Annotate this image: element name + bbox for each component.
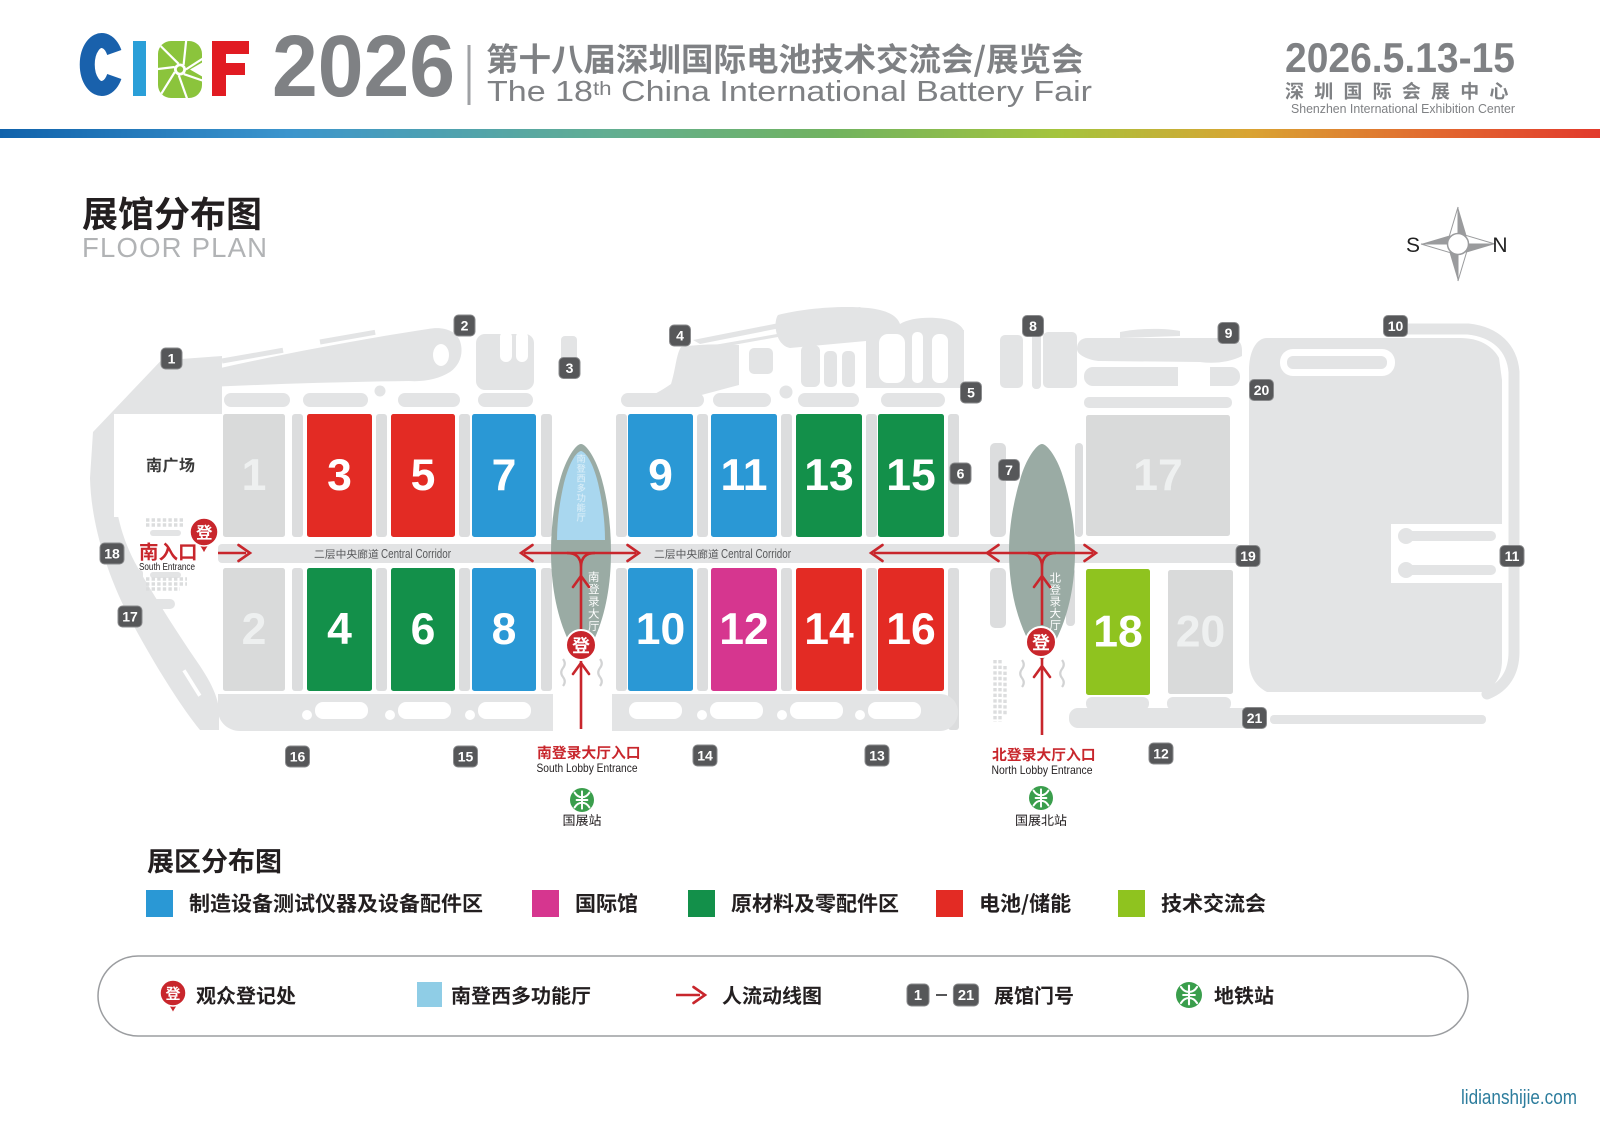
svg-text:3: 3 bbox=[566, 360, 574, 376]
svg-text:13: 13 bbox=[869, 747, 885, 763]
svg-text:10: 10 bbox=[1388, 318, 1404, 334]
svg-text:16: 16 bbox=[290, 748, 306, 764]
svg-text:2026: 2026 bbox=[272, 18, 455, 115]
svg-text:16: 16 bbox=[886, 605, 936, 654]
svg-text:1: 1 bbox=[242, 451, 267, 500]
svg-text:7: 7 bbox=[1005, 462, 1013, 478]
svg-text:15: 15 bbox=[886, 451, 936, 500]
svg-text:North Lobby Entrance: North Lobby Entrance bbox=[992, 763, 1093, 777]
svg-text:20: 20 bbox=[1176, 608, 1226, 657]
svg-text:12: 12 bbox=[719, 605, 769, 654]
svg-text:7: 7 bbox=[492, 451, 517, 500]
svg-text:9: 9 bbox=[1225, 325, 1233, 341]
svg-text:9: 9 bbox=[648, 451, 673, 500]
svg-text:20: 20 bbox=[1254, 382, 1270, 398]
svg-text:17: 17 bbox=[1133, 451, 1183, 500]
svg-text:8: 8 bbox=[1029, 318, 1037, 334]
svg-text:South Lobby Entrance: South Lobby Entrance bbox=[537, 761, 638, 775]
svg-text:15: 15 bbox=[458, 748, 474, 764]
svg-text:South Entrance: South Entrance bbox=[139, 561, 195, 573]
svg-text:Central Corridor: Central Corridor bbox=[721, 547, 791, 561]
svg-text:5: 5 bbox=[967, 384, 975, 400]
svg-text:21: 21 bbox=[958, 988, 974, 1004]
svg-text:14: 14 bbox=[804, 605, 854, 654]
svg-text:Central Corridor: Central Corridor bbox=[381, 547, 451, 561]
svg-text:11: 11 bbox=[1505, 548, 1520, 564]
svg-text:lidianshijie.com: lidianshijie.com bbox=[1461, 1087, 1577, 1109]
svg-text:8: 8 bbox=[492, 605, 517, 654]
svg-text:19: 19 bbox=[1240, 548, 1256, 564]
svg-text:4: 4 bbox=[676, 327, 684, 343]
svg-text:1: 1 bbox=[168, 350, 176, 366]
svg-text:17: 17 bbox=[122, 608, 138, 624]
svg-text:14: 14 bbox=[697, 747, 713, 763]
svg-text:11: 11 bbox=[720, 451, 767, 500]
svg-text:10: 10 bbox=[636, 605, 686, 654]
svg-text:6: 6 bbox=[411, 605, 436, 654]
svg-text:6: 6 bbox=[957, 465, 965, 481]
svg-text:4: 4 bbox=[327, 605, 352, 654]
svg-text:1: 1 bbox=[914, 988, 922, 1004]
svg-text:2026.5.13-15: 2026.5.13-15 bbox=[1285, 34, 1515, 81]
svg-text:N: N bbox=[1492, 234, 1507, 257]
svg-text:S: S bbox=[1406, 234, 1420, 257]
svg-text:FLOOR PLAN: FLOOR PLAN bbox=[82, 232, 268, 263]
svg-text:12: 12 bbox=[1153, 745, 1169, 761]
svg-text:The 18th China International B: The 18th China International Battery Fai… bbox=[487, 76, 1092, 108]
svg-text:2: 2 bbox=[461, 317, 469, 333]
svg-text:18: 18 bbox=[1093, 608, 1143, 657]
svg-text:Shenzhen International Exhibit: Shenzhen International Exhibition Center bbox=[1291, 101, 1516, 116]
svg-text:5: 5 bbox=[411, 451, 436, 500]
svg-text:13: 13 bbox=[804, 451, 854, 500]
svg-text:2: 2 bbox=[242, 605, 267, 654]
svg-text:3: 3 bbox=[327, 451, 352, 500]
svg-text:18: 18 bbox=[104, 545, 120, 561]
svg-text:21: 21 bbox=[1247, 710, 1263, 726]
